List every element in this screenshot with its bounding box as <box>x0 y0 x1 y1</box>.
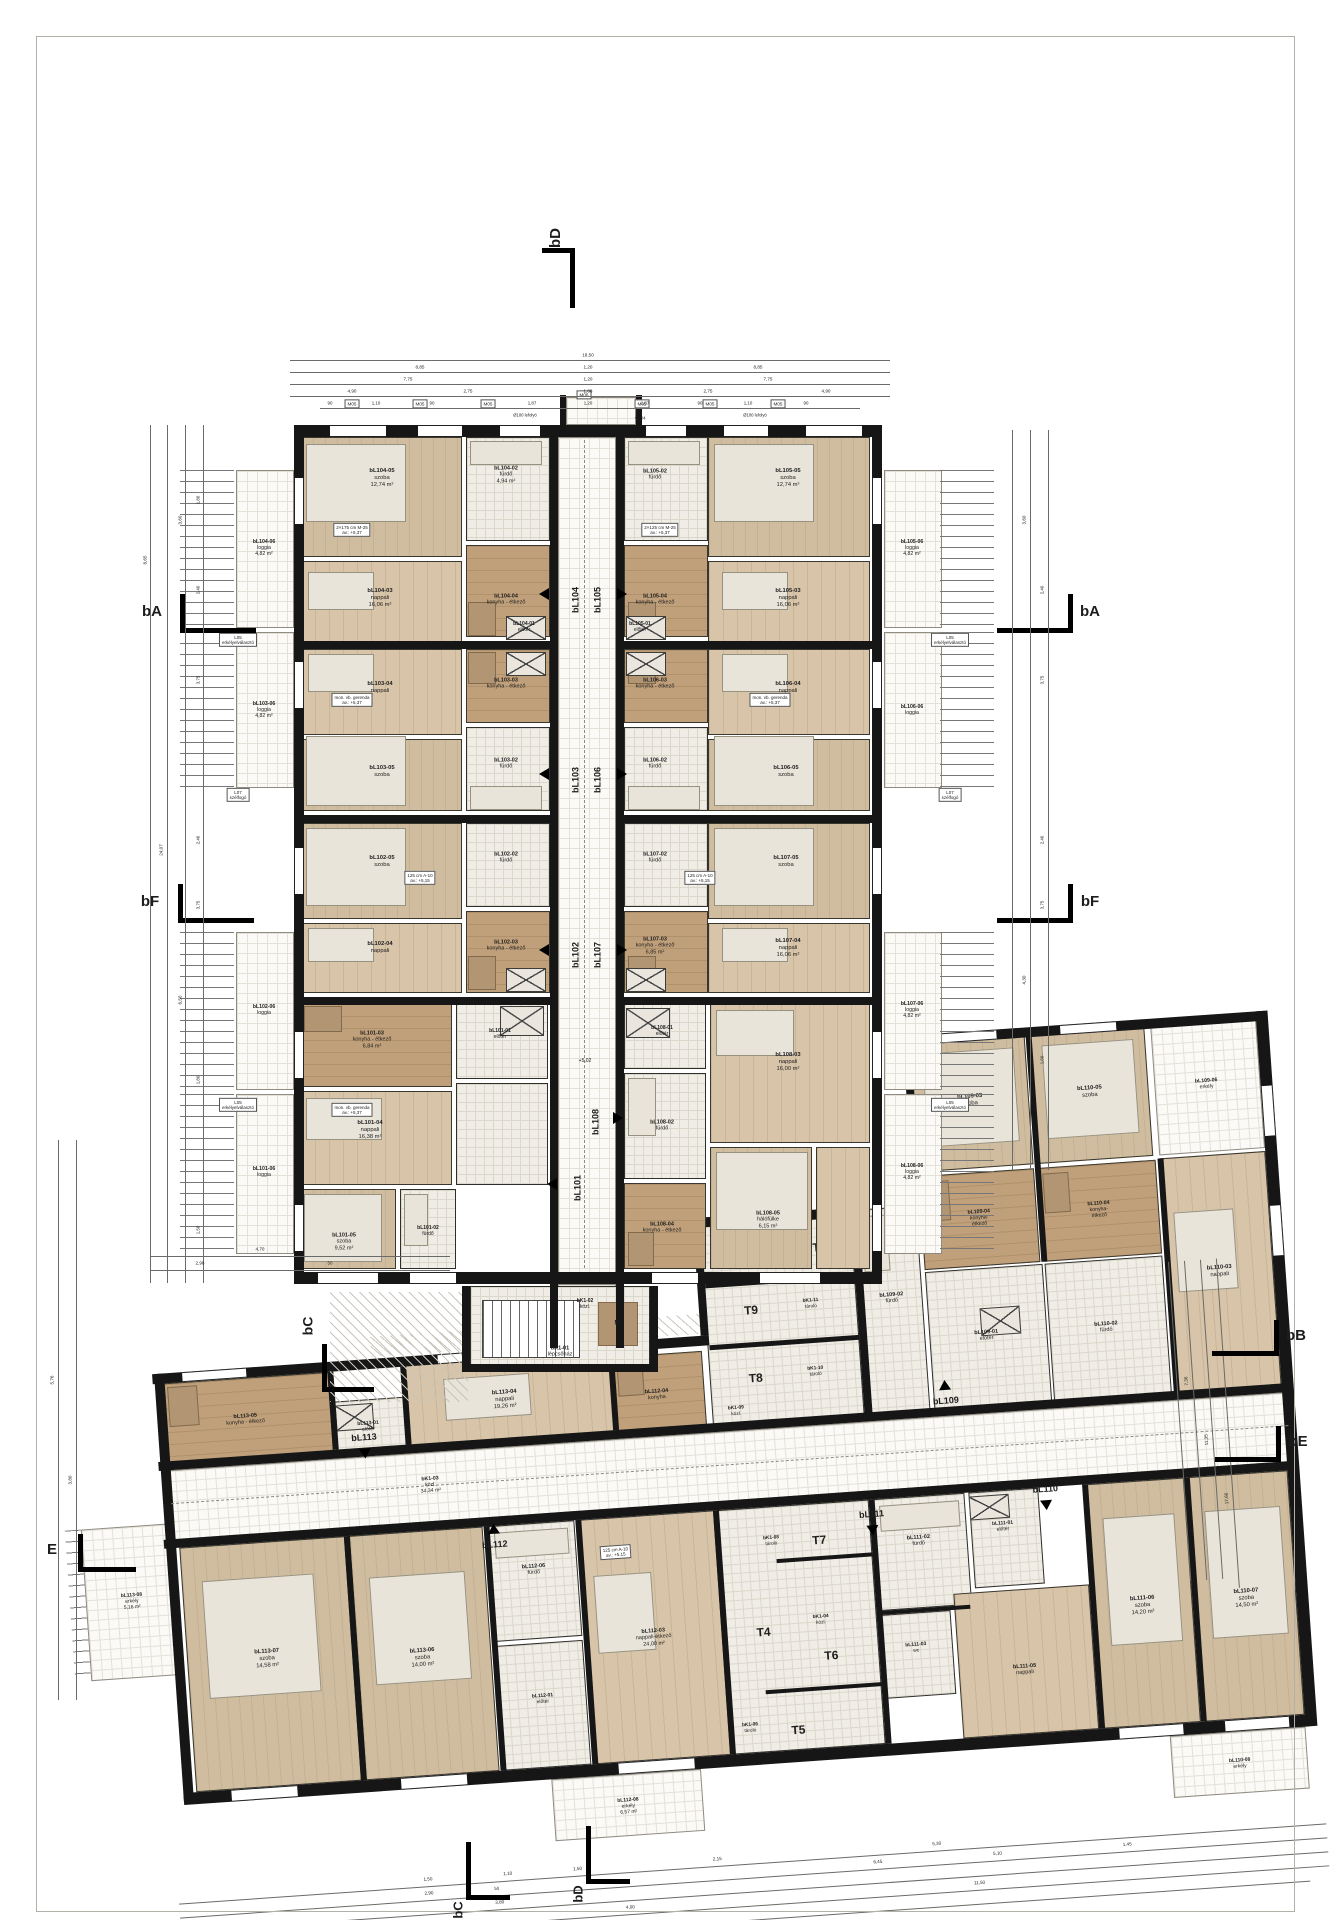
section-line-bar <box>322 1387 374 1392</box>
railing-slats <box>940 1094 994 1254</box>
room-tiled-floor <box>466 823 550 907</box>
text-label: +5,02 <box>579 1059 592 1065</box>
text-label: 1,10 <box>744 400 753 405</box>
direction-triangle <box>539 768 549 780</box>
wardrobe-x-box <box>626 652 666 676</box>
floor-plan-sheet: bL113-05konyha - étkezőbL113-01előtérbL1… <box>0 0 1331 1920</box>
furniture-dark <box>468 956 496 990</box>
furniture <box>714 828 814 906</box>
text-label: 24,07 <box>158 844 163 856</box>
furniture <box>304 1194 382 1262</box>
text-label: Ø100 lefolyó <box>513 414 537 419</box>
text-label: 3,60 <box>177 516 182 525</box>
annotation-note: L05erkélyelválasztó <box>219 633 257 647</box>
text-label: bL106-02fürdő <box>643 758 667 771</box>
dimension-line <box>150 425 151 1283</box>
text-label: bL107-06loggia4,82 m² <box>901 1001 924 1019</box>
text-label: bL105-01előtér <box>629 622 651 634</box>
wall-segment <box>550 1284 558 1348</box>
direction-triangle <box>617 944 627 956</box>
text-label: 4,90 <box>348 388 357 393</box>
furniture <box>308 928 374 962</box>
wall-segment <box>462 1286 470 1372</box>
text-label: bL102 <box>571 942 582 968</box>
window-opening <box>872 1205 882 1251</box>
section-line-bar <box>586 1879 630 1884</box>
railing-slats <box>180 470 234 628</box>
section-line-bar <box>466 1895 510 1900</box>
annotation-note: mon. vb. gerendaav.: +5,37 <box>331 1103 372 1117</box>
text-label: bL102-05szoba <box>369 855 394 869</box>
wall-segment <box>550 437 558 1272</box>
window-opening <box>872 1032 882 1078</box>
text-label: bL101-02fürdő <box>417 1226 439 1238</box>
text-label: 1,87 <box>528 400 537 405</box>
wall-segment <box>624 641 872 649</box>
text-label: bL103-06loggia4,82 m² <box>253 701 276 719</box>
wall-segment <box>624 815 872 823</box>
text-label: 5,76 <box>49 1376 54 1385</box>
loggia-floor <box>558 437 616 1284</box>
text-label: 8,65 <box>142 556 147 565</box>
annotation-note: 2×125 cm M-25av.: +5,37 <box>641 523 678 537</box>
wall-segment <box>304 641 550 649</box>
room-tiled-floor <box>456 1083 548 1185</box>
text-label: 1,20 <box>584 376 593 381</box>
furniture-dark <box>628 1232 654 1266</box>
text-label: 1,60 <box>1039 1056 1044 1065</box>
window-opening <box>410 1272 456 1284</box>
window-opening <box>500 425 540 437</box>
furniture <box>714 736 814 806</box>
text-label: bL106-06loggia <box>901 704 924 716</box>
text-label: bL105 <box>593 587 604 613</box>
text-label: bL102-02fürdő <box>494 852 518 865</box>
text-label: 2,98 <box>196 1260 205 1265</box>
annotation-note: 125 cm A-10av.: +5,15 <box>404 871 435 885</box>
furniture-dark <box>304 1006 342 1032</box>
window-opening <box>294 478 304 524</box>
text-label: bL104-05szoba12,74 m² <box>369 468 394 488</box>
dimension-line <box>290 384 890 385</box>
text-label: bL103-03konyha - étkező <box>487 678 526 691</box>
wall-segment <box>304 815 550 823</box>
window-opening <box>872 662 882 708</box>
dimension-line <box>58 1140 59 1700</box>
dimension-line <box>150 1256 450 1257</box>
dimension-line <box>1012 430 1013 1170</box>
window-opening <box>294 848 304 894</box>
section-line-bar <box>1215 1457 1281 1462</box>
dimension-line <box>185 425 186 1283</box>
annotation-note: L07szélfogó <box>227 788 250 802</box>
text-label: 3,75 <box>1039 901 1044 910</box>
text-label: bL105-03nappali16,06 m² <box>775 588 800 608</box>
text-label: bL107-04nappali16,06 m² <box>775 938 800 958</box>
text-label: bC <box>300 1317 317 1336</box>
text-label: 1,20 <box>584 400 593 405</box>
dimension-line <box>1030 430 1031 1170</box>
window-opening <box>872 848 882 894</box>
text-label: bL104-04konyha - étkező <box>487 594 526 607</box>
text-label: bC <box>450 1901 465 1918</box>
text-label: bK1-01lépcsőház <box>548 1346 573 1359</box>
dimension-line <box>76 1140 77 1700</box>
window-opening <box>294 1205 304 1251</box>
wall-segment <box>560 395 566 425</box>
wall-segment <box>624 997 872 1005</box>
text-label: bL104 <box>571 587 582 613</box>
text-label: 90 <box>698 400 703 405</box>
annotation-note: 125 cm A-10av.: +5,15 <box>684 871 715 885</box>
text-label: bL104-02fürdő4,94 m² <box>494 465 518 484</box>
window-opening <box>294 1032 304 1078</box>
text-label: bL108-02fürdő <box>650 1120 674 1133</box>
text-label: 1,50 <box>195 1226 200 1235</box>
railing-slats <box>180 632 234 788</box>
direction-triangle <box>539 944 549 956</box>
text-label: bL107-05szoba <box>773 855 798 869</box>
annotation-note: L05erkélyelválasztó <box>219 1098 257 1112</box>
dimension-line <box>290 360 890 361</box>
window-opening <box>646 425 686 437</box>
furniture <box>470 786 542 810</box>
text-label: bL106 <box>593 767 604 793</box>
text-label: 4,70 <box>256 1246 265 1251</box>
window-opening <box>652 1272 698 1284</box>
dimension-line <box>150 1270 450 1271</box>
text-label: bL102-04nappali <box>367 941 392 955</box>
text-label: 3,60 <box>1021 516 1026 525</box>
dimension-line <box>1048 430 1049 1170</box>
window-opening <box>330 425 386 437</box>
railing-slats <box>940 932 994 1090</box>
room-wood-floor <box>816 1147 870 1269</box>
railing-slats <box>180 1094 234 1254</box>
text-label: bB <box>1286 1327 1306 1345</box>
window-opening <box>724 425 768 437</box>
text-label: bL101 <box>573 1175 584 1201</box>
text-label: bL101-04nappali16,38 m² <box>357 1120 382 1140</box>
text-label: bE <box>1288 1433 1307 1451</box>
annotation-note: 2×175 cm M-25av.: +5,37 <box>333 523 370 537</box>
text-label: bF <box>1081 893 1099 911</box>
text-label: 3,80 <box>67 1476 72 1485</box>
direction-triangle <box>617 588 627 600</box>
text-label: bL104-06loggia4,82 m² <box>253 539 276 557</box>
loggia-floor <box>566 397 636 425</box>
wall-segment <box>616 437 624 1272</box>
text-label: bL108-06loggia4,82 m² <box>901 1163 924 1181</box>
wardrobe-x-box <box>506 968 546 992</box>
dimension-line <box>203 425 204 1283</box>
direction-triangle <box>617 768 627 780</box>
text-label: bL105-02fürdő <box>643 469 667 482</box>
text-label: bL101-01előtér <box>489 1029 511 1041</box>
dimension-line <box>290 396 890 397</box>
section-line-bar <box>180 628 256 633</box>
dimension-line <box>290 372 890 373</box>
text-label: 90 <box>804 400 809 405</box>
section-line-bar <box>1068 884 1073 922</box>
text-label: 1,80 <box>195 1076 200 1085</box>
text-label: Ø100 lefolyó <box>743 414 767 419</box>
text-label: 8,85 <box>416 364 425 369</box>
text-label: 3,75 <box>1039 676 1044 685</box>
text-label: bL105-05szoba12,74 m² <box>775 468 800 488</box>
section-line-bar <box>78 1567 136 1572</box>
text-label: bL108-01előtér <box>651 1026 673 1038</box>
section-line-bar <box>542 248 575 253</box>
text-label: bD <box>547 228 565 248</box>
text-label: bL101-05szoba9,52 m² <box>332 1232 356 1251</box>
text-label: 90 <box>328 400 333 405</box>
section-line-bar <box>1212 1351 1279 1356</box>
text-label: bL107-02fürdő <box>643 852 667 865</box>
text-label: bL103-02fürdő <box>494 758 518 771</box>
text-label: bL103 <box>571 767 582 793</box>
text-label: bL108-03nappali16,00 m² <box>775 1052 800 1072</box>
text-label: 2,40 <box>1039 836 1044 845</box>
text-label: 2,75 <box>464 388 473 393</box>
railing-slats <box>180 932 234 1090</box>
direction-triangle <box>539 588 549 600</box>
text-label: +5,04 <box>634 415 645 420</box>
wall-segment <box>462 1364 658 1372</box>
hatched-walkway <box>330 1292 468 1402</box>
text-label: 1,87 <box>641 400 650 405</box>
dimension-line <box>167 425 168 1283</box>
section-line-bar <box>997 918 1073 923</box>
text-label: bL107 <box>593 942 604 968</box>
wall-segment <box>304 997 550 1005</box>
furniture <box>470 441 542 465</box>
window-opening <box>294 662 304 708</box>
wardrobe-x-box <box>626 968 666 992</box>
text-label: 2,75 <box>704 388 713 393</box>
upper-wing-and-annotations: bL104-05szoba12,74 m²bL104-02fürdő4,94 m… <box>0 0 1331 1920</box>
text-label: 18,50 <box>582 352 594 357</box>
text-label: 1,20 <box>584 364 593 369</box>
text-label: 2,40 <box>195 586 200 595</box>
text-label: 2,40 <box>1039 586 1044 595</box>
furniture <box>404 1194 428 1246</box>
section-line-bar <box>1068 594 1073 632</box>
text-label: bD <box>570 1885 585 1902</box>
text-label: bL108-05hálófülke6,15 m² <box>756 1210 780 1229</box>
furniture <box>308 654 374 692</box>
window-opening <box>806 425 862 437</box>
text-label: bL107-03konyha - étkező6,85 m² <box>636 936 675 955</box>
annotation-note: mon. vb. gerendaav.: +5,37 <box>749 693 790 707</box>
text-label: 7,75 <box>404 376 413 381</box>
window-opening <box>760 1272 820 1284</box>
text-label: 2,40 <box>195 836 200 845</box>
dimension-line <box>320 408 860 409</box>
railing-slats <box>940 470 994 628</box>
text-label: 1,80 <box>195 496 200 505</box>
furniture-dark <box>468 602 496 636</box>
text-label: bL105-06loggia4,82 m² <box>901 539 924 557</box>
text-label: bL104-03nappali16,06 m² <box>367 588 392 608</box>
section-line-bar <box>570 248 575 308</box>
wall-segment <box>616 1284 624 1348</box>
section-line-bar <box>466 1842 471 1900</box>
direction-triangle <box>547 1178 557 1190</box>
section-line-bar <box>178 918 254 923</box>
text-label: 1,88 <box>584 388 593 393</box>
section-line-bar <box>178 884 183 922</box>
room-tiled-floor <box>624 823 708 907</box>
text-label: bL103-05szoba <box>369 765 394 779</box>
text-label: bL106-05szoba <box>773 765 798 779</box>
text-label: 3,75 <box>195 901 200 910</box>
direction-triangle <box>613 1112 623 1124</box>
window-opening <box>318 1272 378 1284</box>
text-label: bL108-04konyha - étkező <box>643 1222 682 1235</box>
furniture <box>628 441 700 465</box>
text-label: bL102-03konyha - étkező <box>487 940 526 953</box>
text-label: bK1-02közl. <box>577 1299 594 1311</box>
text-label: 4,90 <box>822 388 831 393</box>
text-label: bL101-03konyha - étkező6,84 m² <box>353 1030 392 1049</box>
text-label: 90 <box>430 400 435 405</box>
wall-segment <box>650 1286 658 1372</box>
text-label: bL105-04konyha - étkező <box>636 594 675 607</box>
text-label: M <box>615 1320 620 1327</box>
railing-slats <box>940 632 994 788</box>
annotation-note: mon. vb. gerendaav.: +5,37 <box>331 693 372 707</box>
furniture <box>716 1010 794 1056</box>
annotation-note: L07szélfogó <box>939 788 962 802</box>
window-opening <box>872 478 882 524</box>
text-label: bA <box>142 603 162 621</box>
text-label: E <box>47 1541 57 1559</box>
section-line-bar <box>322 1344 327 1392</box>
text-label: 8,85 <box>754 364 763 369</box>
window-opening <box>418 425 462 437</box>
section-line-bar <box>997 628 1073 633</box>
text-label: 1,10 <box>372 400 381 405</box>
text-label: bL108 <box>591 1109 602 1135</box>
text-label: 4,30 <box>1021 976 1026 985</box>
wardrobe-x-box <box>506 652 546 676</box>
furniture <box>628 786 700 810</box>
annotation-note: L05erkélyelválasztó <box>931 1098 969 1112</box>
text-label: 6,50 <box>177 996 182 1005</box>
corridor-centerline <box>584 440 585 1268</box>
furniture <box>308 572 374 610</box>
text-label: bL106-03konyha - étkező <box>636 678 675 691</box>
text-label: bA <box>1080 603 1100 621</box>
section-line-bar <box>586 1826 591 1884</box>
annotation-note: L05erkélyelválasztó <box>931 633 969 647</box>
text-label: bL104-01előtér <box>513 622 535 634</box>
text-label: 50 <box>328 1260 333 1265</box>
text-label: bL101-06loggia <box>253 1166 276 1178</box>
text-label: 7,75 <box>764 376 773 381</box>
text-label: bL102-06loggia <box>253 1004 276 1016</box>
text-label: 3,75 <box>195 676 200 685</box>
